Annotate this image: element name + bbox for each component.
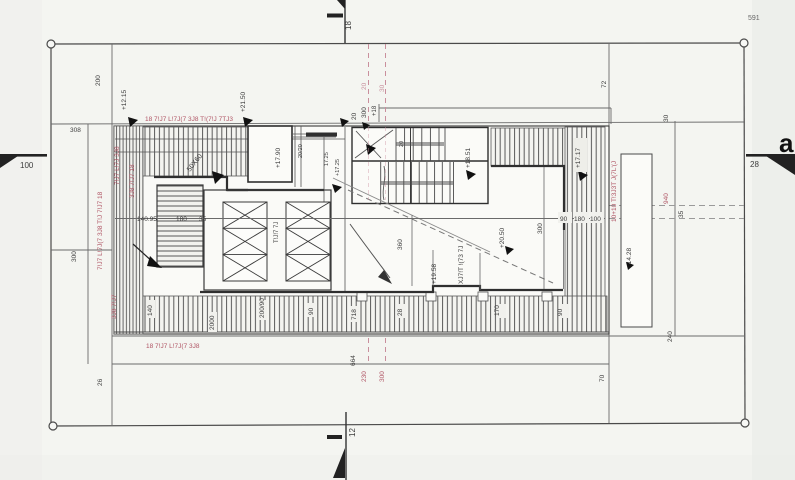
svg-text:72: 72 [601, 80, 608, 88]
svg-text:30: 30 [379, 84, 386, 92]
svg-text:20: 20 [399, 141, 405, 147]
svg-text:a: a [779, 128, 794, 158]
svg-text:3J8 7!J7: 3J8 7!J7 [111, 294, 118, 319]
svg-text:+19.58: +19.58 [431, 264, 438, 284]
svg-text:+21.50: +21.50 [240, 92, 247, 112]
svg-text:28: 28 [750, 160, 759, 169]
svg-text:7!J7 L!7J(7 3J8 T!J 7!J7 18: 7!J7 L!7J(7 3J8 T!J 7!J7 18 [97, 191, 104, 270]
svg-text:18 7!J7 L!7J(7 3J8: 18 7!J7 L!7J(7 3J8 [146, 343, 200, 350]
svg-text:XJ7!T !(73 7J: XJ7!T !(73 7J [458, 245, 465, 284]
svg-text:940: 940 [663, 193, 670, 204]
svg-text:18: 18 [344, 21, 353, 30]
svg-text:T!J!7 7J: T!J!7 7J [274, 222, 280, 243]
svg-text:140: 140 [147, 305, 154, 316]
svg-text:230: 230 [361, 371, 368, 382]
svg-text:17.25: 17.25 [324, 152, 330, 166]
svg-text:28: 28 [397, 308, 404, 316]
svg-text:12: 12 [348, 428, 357, 437]
svg-text:300: 300 [71, 251, 78, 262]
svg-text:30: 30 [663, 114, 670, 122]
svg-text:200: 200 [95, 75, 102, 86]
svg-text:20: 20 [361, 82, 368, 90]
svg-text:35: 35 [199, 216, 207, 223]
svg-text:10+10 T!3J3T J(7L'(J: 10+10 T!3J3T J(7L'(J [611, 161, 618, 222]
svg-text:+17.17: +17.17 [575, 148, 582, 168]
svg-text:20/20: 20/20 [298, 144, 304, 158]
svg-text:3J8 7!J7 18: 3J8 7!J7 18 [129, 164, 136, 198]
svg-text:180: 180 [574, 216, 585, 223]
svg-text:+17.25: +17.25 [335, 159, 341, 176]
svg-text:+20.50: +20.50 [499, 228, 506, 248]
svg-text:240: 240 [667, 331, 674, 342]
svg-text:7!J7 L!7J 3J8: 7!J7 L!7J 3J8 [114, 146, 121, 185]
svg-text:308: 308 [70, 127, 81, 134]
svg-text:18 7!J7 L!7J(7 3J8 T!(7!J 7TJ3: 18 7!J7 L!7J(7 3J8 T!(7!J 7TJ3 [145, 116, 233, 123]
svg-text:100: 100 [20, 161, 34, 170]
svg-text:140.95: 140.95 [137, 216, 157, 223]
svg-text:100: 100 [590, 216, 601, 223]
svg-text:+17.90: +17.90 [275, 148, 282, 168]
svg-text:90: 90 [557, 308, 564, 316]
svg-text:300: 300 [379, 371, 386, 382]
svg-text:664: 664 [350, 355, 357, 366]
svg-text:70: 70 [599, 374, 606, 382]
svg-text:90: 90 [560, 216, 568, 223]
svg-text:360: 360 [397, 239, 404, 250]
svg-text:+12.15: +12.15 [121, 90, 128, 110]
svg-text:+18.51: +18.51 [465, 148, 472, 168]
svg-text:180: 180 [176, 216, 187, 223]
svg-text:35: 35 [678, 210, 685, 218]
svg-text:300: 300 [361, 107, 368, 118]
svg-text:718: 718 [351, 309, 358, 320]
svg-text:170: 170 [494, 305, 501, 316]
svg-text:591: 591 [748, 15, 760, 22]
svg-text:2000: 2000 [209, 315, 216, 330]
svg-text:90: 90 [308, 307, 315, 315]
svg-text:300: 300 [537, 223, 544, 234]
svg-text:+18: +18 [372, 105, 378, 116]
svg-text:20: 20 [351, 112, 358, 120]
svg-text:26: 26 [97, 378, 104, 386]
svg-text:200/90: 200/90 [259, 298, 266, 318]
